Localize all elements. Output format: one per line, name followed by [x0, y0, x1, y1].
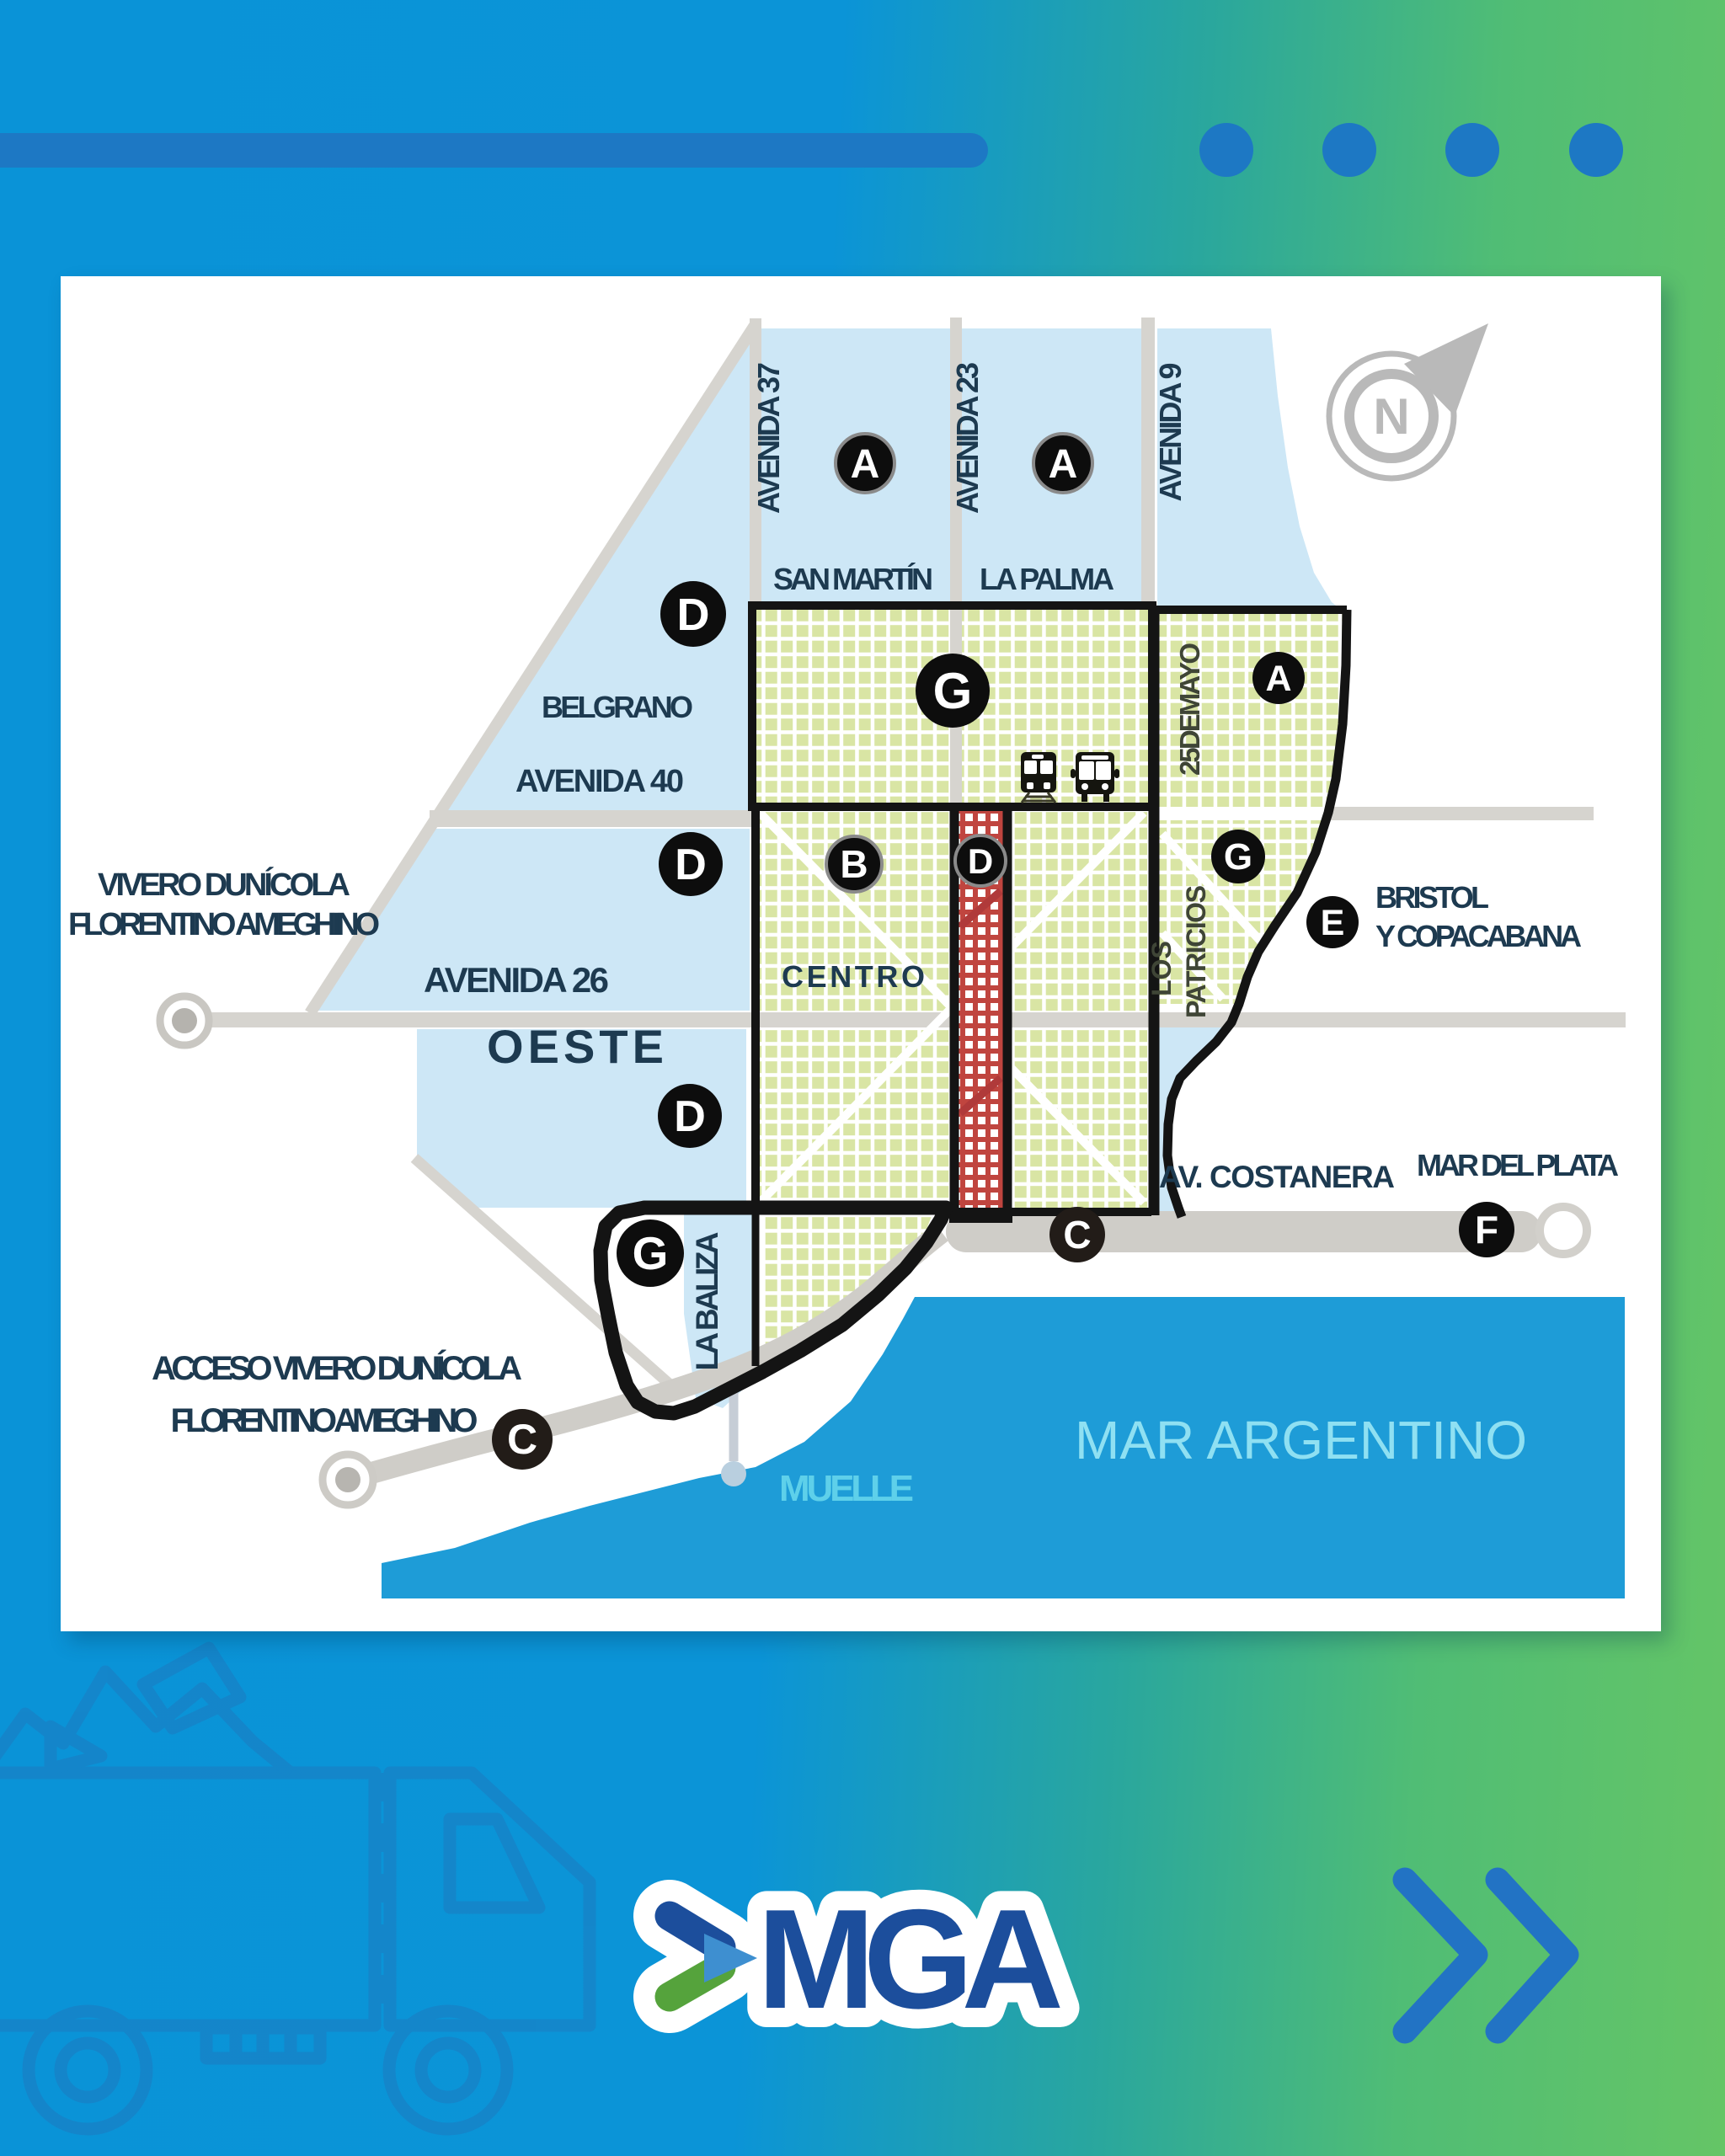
svg-text:AVENIDA 40: AVENIDA 40 — [515, 764, 684, 799]
svg-text:G: G — [933, 663, 973, 719]
svg-text:E: E — [1321, 903, 1345, 943]
svg-text:MGA: MGA — [757, 1880, 1060, 2038]
svg-text:C: C — [507, 1416, 537, 1463]
svg-text:PATRICIOS: PATRICIOS — [1181, 885, 1211, 1018]
svg-text:B: B — [840, 842, 868, 886]
svg-text:SAN MARTÍN: SAN MARTÍN — [773, 562, 933, 596]
svg-text:FLORENTINO AMEGHINO: FLORENTINO AMEGHINO — [68, 907, 380, 942]
svg-text:BRISTOL: BRISTOL — [1375, 880, 1489, 915]
svg-text:BELGRANO: BELGRANO — [542, 690, 693, 724]
svg-text:AVENIDA 23: AVENIDA 23 — [950, 362, 985, 514]
svg-text:D: D — [675, 841, 707, 889]
svg-text:F: F — [1475, 1208, 1498, 1251]
svg-text:N: N — [1373, 388, 1409, 445]
svg-text:LA PALMA: LA PALMA — [980, 562, 1114, 596]
svg-text:G: G — [1224, 836, 1252, 878]
svg-text:D: D — [677, 590, 710, 640]
svg-text:AVENIDA 37: AVENIDA 37 — [751, 362, 786, 514]
svg-text:MUELLE: MUELLE — [779, 1468, 914, 1509]
svg-text:G: G — [633, 1227, 669, 1279]
svg-text:MAR ARGENTINO: MAR ARGENTINO — [1075, 1410, 1530, 1470]
svg-text:C: C — [1063, 1213, 1091, 1257]
svg-text:25DEMAYO: 25DEMAYO — [1174, 643, 1205, 776]
svg-text:ACCESO VIVERO DUNÍCOLA: ACCESO VIVERO DUNÍCOLA — [152, 1349, 522, 1387]
svg-text:A: A — [851, 442, 880, 487]
svg-text:OESTE: OESTE — [487, 1020, 664, 1073]
svg-text:MAR DEL PLATA: MAR DEL PLATA — [1417, 1148, 1619, 1182]
svg-text:VIVERO DUNÍCOLA: VIVERO DUNÍCOLA — [98, 866, 350, 903]
svg-text:LOS: LOS — [1146, 941, 1177, 996]
svg-text:AVENIDA 26: AVENIDA 26 — [424, 960, 609, 1000]
svg-text:Y COPACABANA: Y COPACABANA — [1375, 919, 1582, 953]
svg-text:A: A — [1265, 659, 1291, 699]
svg-text:A: A — [1049, 442, 1078, 487]
svg-text:AV. COSTANERA: AV. COSTANERA — [1159, 1160, 1395, 1194]
svg-text:LA BALIZA: LA BALIZA — [690, 1232, 724, 1371]
svg-text:FLORENTINO AMEGHINO: FLORENTINO AMEGHINO — [171, 1402, 478, 1439]
svg-text:D: D — [968, 841, 993, 881]
svg-text:AVENIDA 9: AVENIDA 9 — [1153, 363, 1188, 502]
svg-text:D: D — [674, 1092, 706, 1141]
